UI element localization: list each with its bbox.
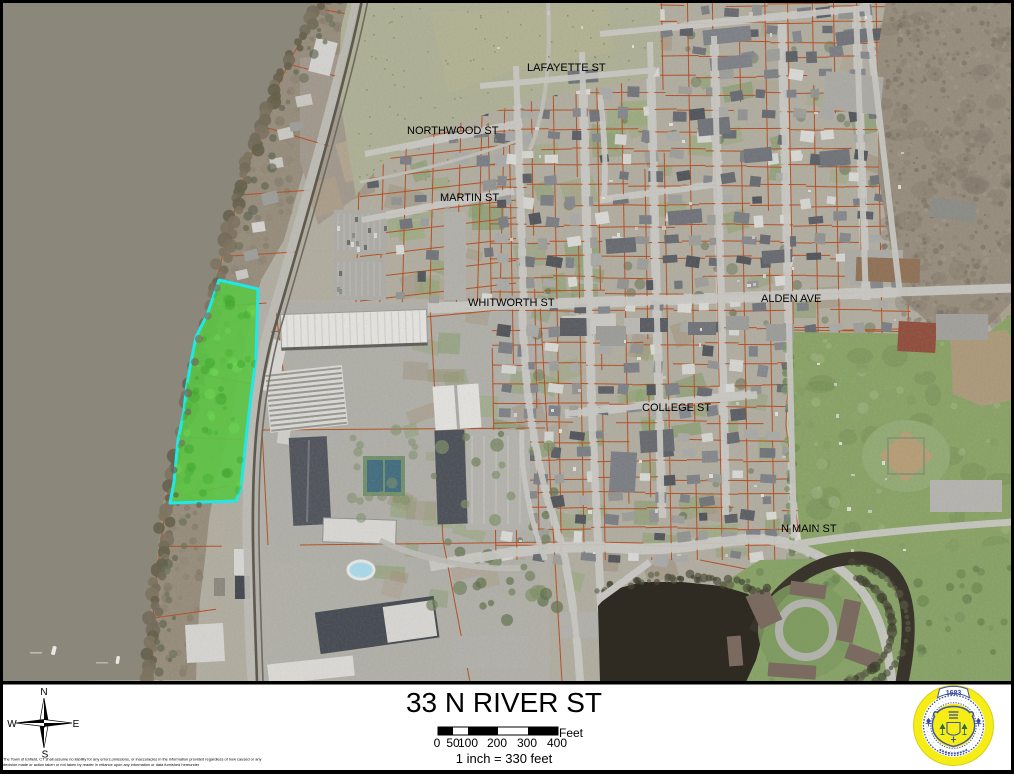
svg-text:WHITWORTH ST: WHITWORTH ST (468, 297, 555, 309)
svg-text:The Town of Enfield, CT shall: The Town of Enfield, CT shall assume no … (3, 757, 262, 762)
svg-text:ALDEN AVE: ALDEN AVE (761, 293, 821, 305)
svg-text:300: 300 (517, 736, 537, 750)
svg-text:W: W (7, 719, 17, 730)
svg-text:N MAIN ST: N MAIN ST (781, 523, 837, 535)
svg-text:LAFAYETTE ST: LAFAYETTE ST (527, 62, 606, 74)
svg-text:1683: 1683 (946, 690, 962, 697)
svg-text:400: 400 (547, 736, 567, 750)
svg-text:200: 200 (487, 736, 507, 750)
svg-text:N: N (40, 687, 47, 698)
svg-text:MARTIN ST: MARTIN ST (440, 192, 499, 204)
svg-text:100: 100 (458, 736, 478, 750)
svg-text:33 N RIVER ST: 33 N RIVER ST (406, 687, 602, 718)
svg-text:COLLEGE ST: COLLEGE ST (642, 402, 711, 414)
svg-text:decision made or action taken: decision made or action taken or not tak… (3, 762, 200, 767)
svg-text:NORTHWOOD ST: NORTHWOOD ST (407, 125, 499, 137)
svg-text:1 inch = 330 feet: 1 inch = 330 feet (456, 751, 553, 766)
svg-text:E: E (73, 719, 80, 730)
svg-text:0: 0 (434, 736, 441, 750)
